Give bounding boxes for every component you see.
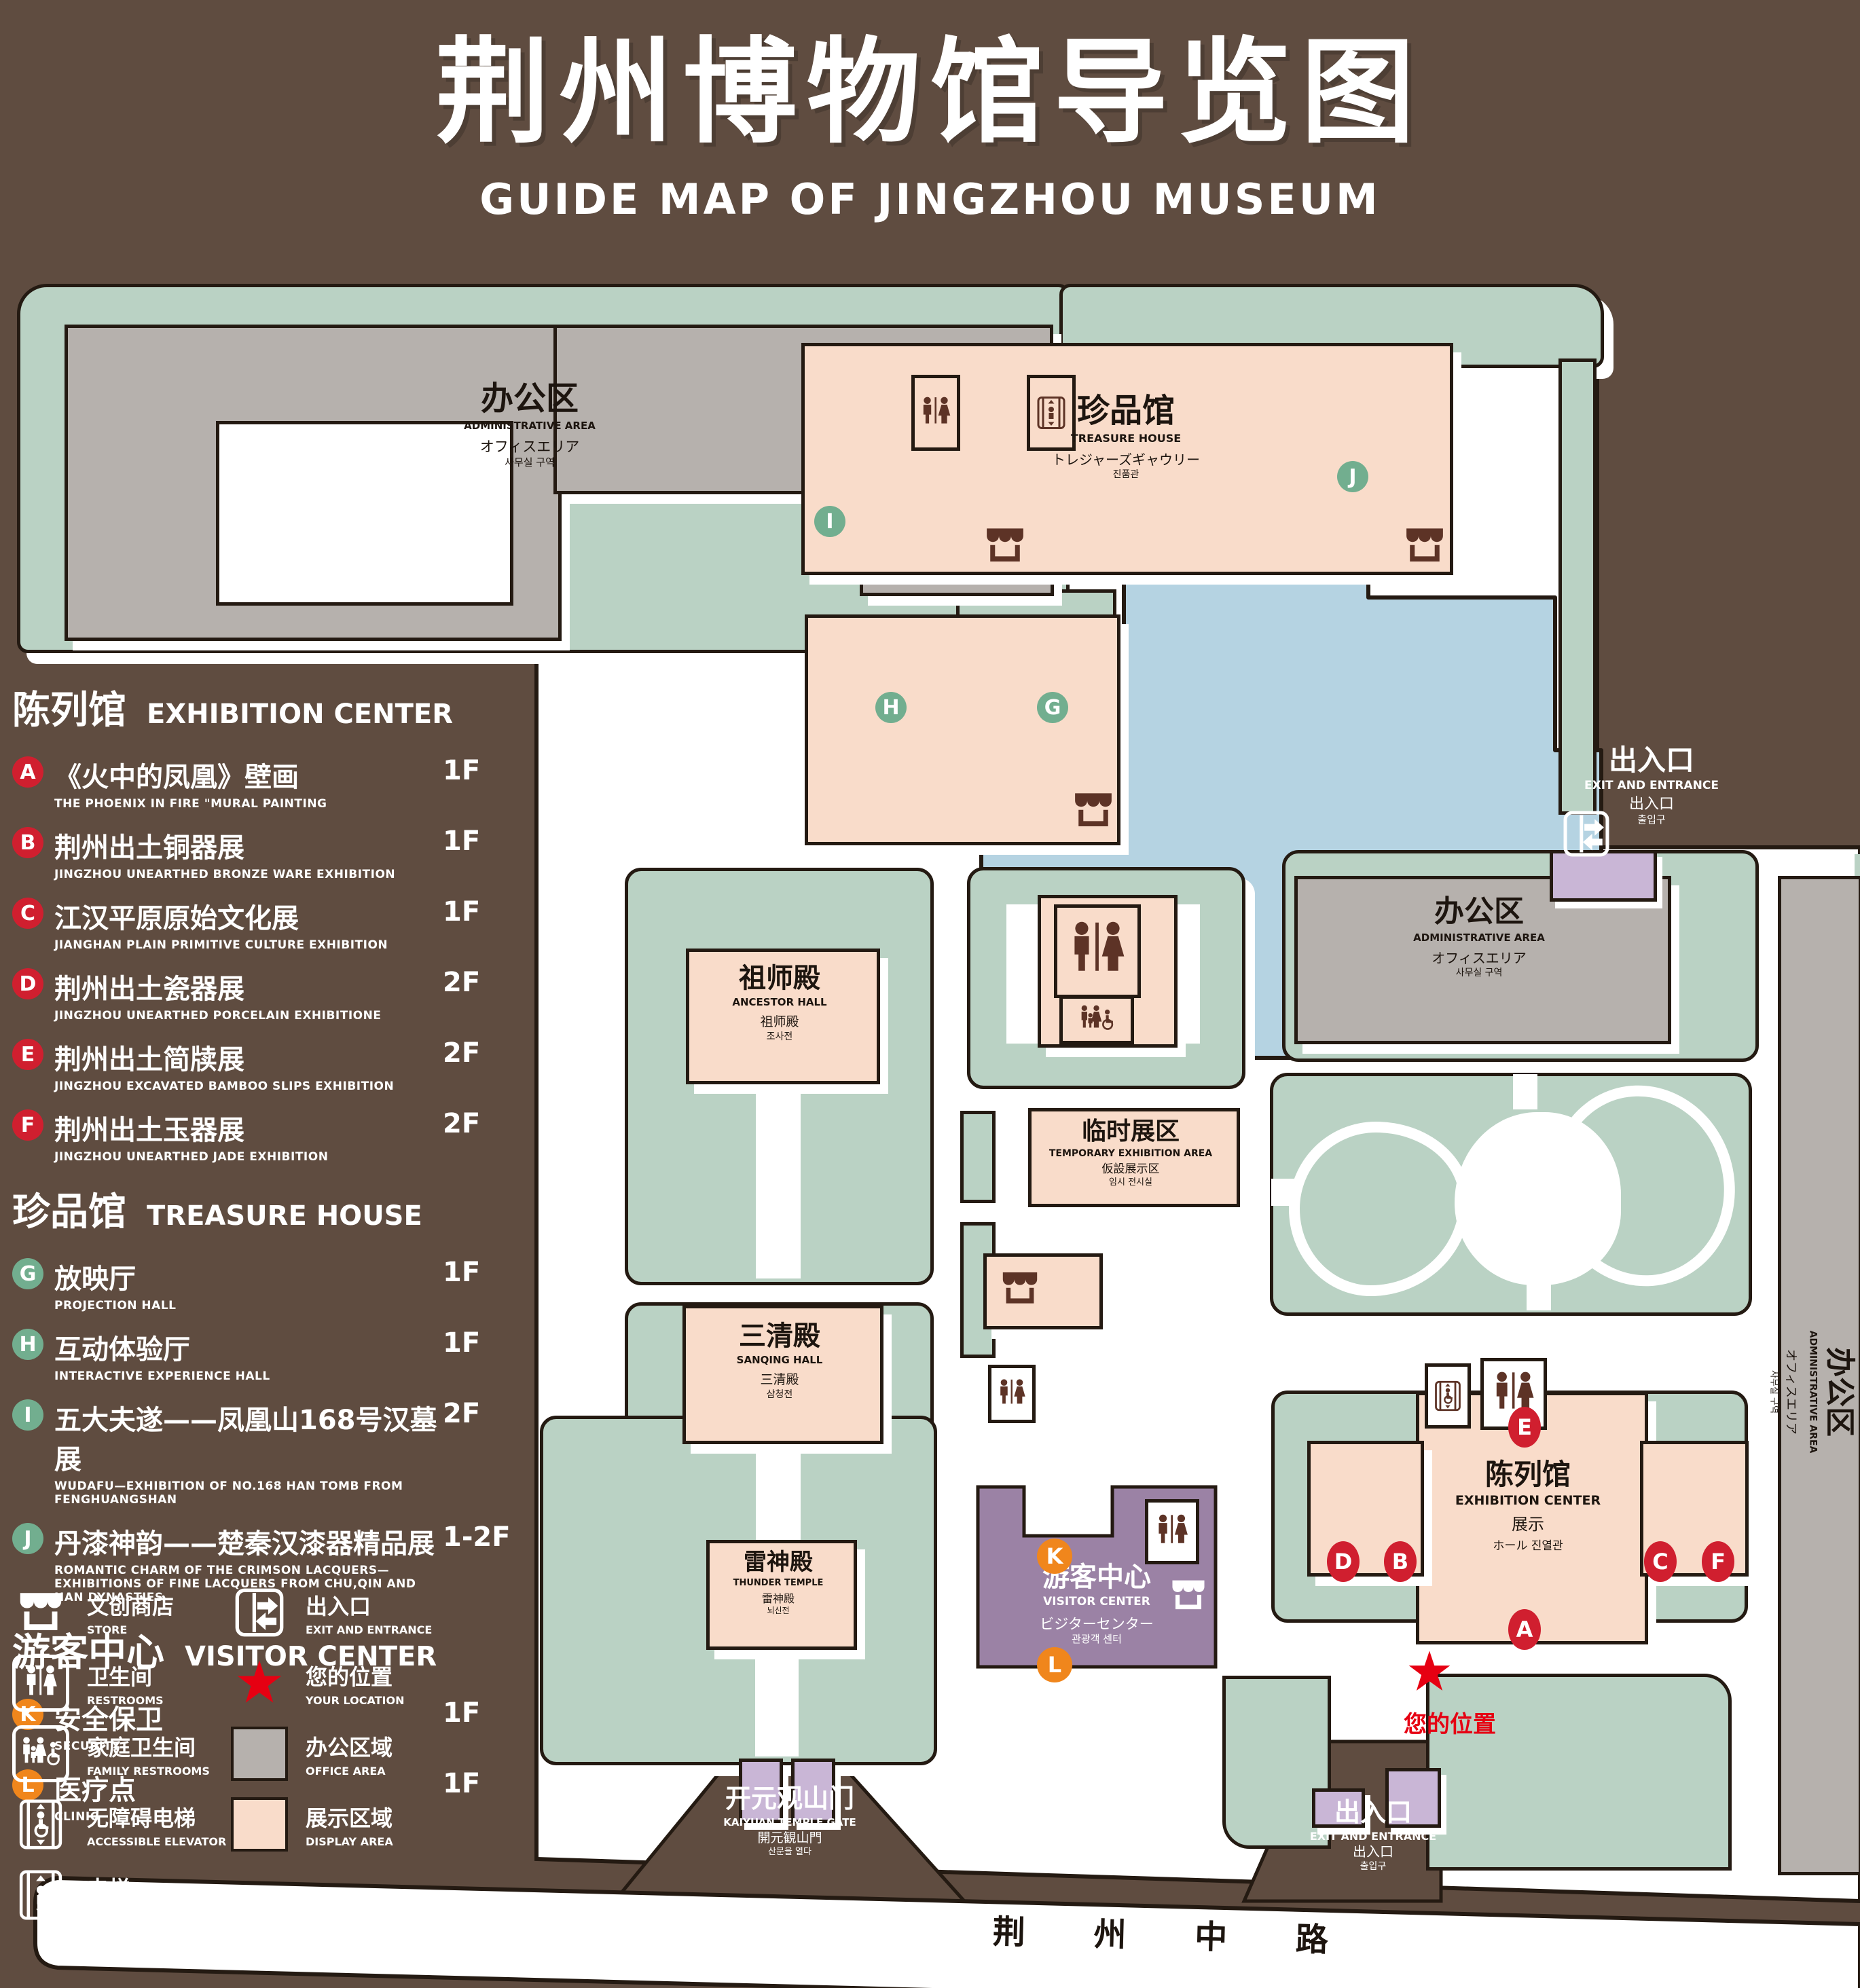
path-thunder [755, 1646, 799, 1756]
legend-item-name-en: PROJECTION HALL [54, 1299, 435, 1312]
location-star-icon [231, 1655, 288, 1712]
legend-item-name-en: WUDAFU—EXHIBITION OF NO.168 HAN TOMB FRO… [54, 1479, 435, 1507]
restrooms-icon [1145, 1499, 1199, 1564]
legend-badge: B [12, 827, 43, 858]
legend-item-name: 荆州出土铜器展 [54, 826, 440, 865]
legend-item-floor: 1F [443, 1327, 523, 1359]
office-area-swatch [231, 1725, 288, 1782]
legend-section-header-exhibition: 陈列馆 EXHIBITION CENTER [12, 680, 523, 735]
legend-item-floor: 2F [443, 1037, 523, 1069]
garden-path-north [1513, 1074, 1537, 1109]
admin-nw-label: 办公区 ADMINISTRATIVE AREA オフィスエリア 사무실 구역 [407, 380, 652, 468]
legend-item-name: 荆州出土简牍展 [54, 1037, 440, 1077]
legend-symbols-right: 出入口EXIT AND ENTRANCE 您的位置YOUR LOCATION 办… [231, 1583, 516, 1866]
exhibition-center-label: 陈列馆 EXHIBITION CENTER 展示 ホール 진열관 [1426, 1458, 1630, 1553]
path-ancestor [756, 1076, 801, 1278]
legend-item-name-en: INTERACTIVE EXPERIENCE HALL [54, 1369, 435, 1383]
legend-symbol-restrooms[interactable]: 卫生间RESTROOMS [12, 1654, 236, 1712]
legend-item-floor: 1F [443, 755, 523, 786]
legend-item-I[interactable]: I 五大夫遂——凤凰山168号汉墓展 2F WUDAFU—EXHIBITION … [12, 1398, 523, 1507]
map-marker-E[interactable]: E [1508, 1407, 1541, 1448]
legend-symbol-family-restrooms[interactable]: 家庭卫生间FAMILY RESTROOMS [12, 1725, 236, 1783]
legend-item-name: 《火中的凤凰》壁画 [54, 755, 440, 794]
legend-badge: E [12, 1039, 43, 1070]
legend-item-G[interactable]: G 放映厅 1F PROJECTION HALL [12, 1257, 523, 1312]
map-marker-L[interactable]: L [1037, 1647, 1072, 1682]
restrooms-icon [12, 1655, 69, 1712]
admin-east-label: 办公区 ADMINISTRATIVE AREA オフィスエリア 사무실 구역 [1778, 876, 1855, 1869]
legend-symbol-elevator[interactable]: 电梯Elevator [12, 1866, 236, 1924]
legend-item-floor: 1F [443, 1257, 523, 1288]
treasure-house-label: 珍品馆 TREASURE HOUSE トレジャーズギャウリー 진품관 [983, 392, 1269, 480]
legend-section-header-treasure: 珍品馆 TREASURE HOUSE [12, 1181, 523, 1236]
legend-item-name-en: JINGZHOU UNEARTHED PORCELAIN EXHIBITIONE [54, 1009, 435, 1023]
elevator-icon [12, 1866, 69, 1923]
exit-icon [231, 1584, 288, 1641]
temporary-exhibition-label: 临时展区 TEMPORARY EXHIBITION AREA 仮設展示区 임시 … [1029, 1118, 1233, 1188]
store-icon [12, 1584, 69, 1641]
legend-badge: F [12, 1109, 43, 1141]
legend-item-name-en: THE PHOENIX IN FIRE "MURAL PAINTING [54, 797, 435, 811]
gate-label: 开元观山门 KAIYUAN TEMPLE GATE 開元観山門 산문을 열다 [678, 1784, 902, 1858]
map-marker-H[interactable]: H [875, 692, 907, 723]
legend-item-name-en: JINGZHOU UNEARTHED BRONZE WARE EXHIBITIO… [54, 868, 435, 881]
thunder-temple-label: 雷神殿 THUNDER TEMPLE 雷神殿 뇌신전 [707, 1549, 850, 1616]
legend-item-F[interactable]: F 荆州出土玉器展 2F JINGZHOU UNEARTHED JADE EXH… [12, 1108, 523, 1164]
restrooms-icon [911, 375, 960, 451]
your-location-star [1407, 1650, 1452, 1695]
display-area-swatch [231, 1796, 288, 1853]
page-title: 荆州博物馆导览图 [0, 0, 1860, 165]
legend-item-floor: 2F [443, 1108, 523, 1139]
page-header: 荆州博物馆导览图 GUIDE MAP OF JINGZHOU MUSEUM [0, 0, 1860, 224]
legend-item-name: 互动体验厅 [54, 1327, 440, 1367]
store-icon [1403, 524, 1446, 568]
legend-symbol-office-area[interactable]: 办公区域OFFICE AREA [231, 1725, 516, 1783]
green-strip-temp-1 [960, 1111, 996, 1203]
map-marker-C[interactable]: C [1644, 1541, 1677, 1582]
map-marker-I[interactable]: I [814, 506, 845, 537]
admin-center-label: 办公区 ADMINISTRATIVE AREA オフィスエリア 사무실 구역 [1350, 895, 1608, 978]
legend-symbols-left: 文创商店STORE 卫生间RESTROOMS 家庭卫生间FAMILY RESTR… [12, 1583, 236, 1936]
ancestor-hall-label: 祖师殿 ANCESTOR HALL 祖师殿 조사전 [691, 963, 868, 1042]
map-marker-A[interactable]: A [1508, 1609, 1541, 1650]
road-name: 荆 州 中 路 [992, 1904, 1357, 1961]
section-title-zh: 珍品馆 [12, 1181, 126, 1236]
family-restrooms-icon [12, 1725, 69, 1782]
legend-item-name: 五大夫遂——凤凰山168号汉墓展 [54, 1398, 440, 1477]
your-location-text: 您的位置 [1404, 1706, 1496, 1739]
garden-path-south [1527, 1281, 1551, 1310]
accessible-elevator-icon [12, 1796, 69, 1853]
accessible-elevator-icon [1425, 1363, 1471, 1429]
legend-badge: J [12, 1523, 43, 1554]
section-title-en: TREASURE HOUSE [147, 1200, 422, 1232]
legend-item-D[interactable]: D 荆州出土瓷器展 2F JINGZHOU UNEARTHED PORCELAI… [12, 967, 523, 1023]
family-restrooms-icon [1059, 995, 1134, 1044]
legend-item-B[interactable]: B 荆州出土铜器展 1F JINGZHOU UNEARTHED BRONZE W… [12, 826, 523, 881]
map-marker-G[interactable]: G [1037, 692, 1068, 723]
restrooms-icon [988, 1365, 1036, 1423]
store-icon [1000, 1268, 1040, 1309]
section-title-en: EXHIBITION CENTER [147, 699, 453, 730]
map-marker-B[interactable]: B [1384, 1541, 1417, 1582]
section-title-zh: 陈列馆 [12, 680, 126, 735]
legend-badge: H [12, 1329, 43, 1360]
sanqing-hall-label: 三清殿 SANQING HALL 三清殿 삼청전 [691, 1321, 868, 1400]
legend-item-name: 荆州出土瓷器展 [54, 967, 440, 1006]
legend-item-name-en: JINGZHOU EXCAVATED BAMBOO SLIPS EXHIBITI… [54, 1080, 435, 1093]
legend-item-floor: 2F [443, 1398, 523, 1429]
map-marker-K[interactable]: K [1037, 1539, 1072, 1574]
legend-item-A[interactable]: A 《火中的凤凰》壁画 1F THE PHOENIX IN FIRE "MURA… [12, 755, 523, 811]
legend-item-floor: 2F [443, 967, 523, 998]
legend-item-floor: 1F [443, 826, 523, 857]
store-icon [1072, 789, 1115, 832]
legend-badge: I [12, 1399, 43, 1431]
legend-symbol-store[interactable]: 文创商店STORE [12, 1583, 236, 1642]
store-icon [983, 524, 1027, 568]
restrooms-icon [1054, 904, 1141, 998]
garden-path-west [1271, 1179, 1294, 1206]
legend-item-floor: 1-2F [443, 1522, 523, 1553]
legend-item-H[interactable]: H 互动体验厅 1F INTERACTIVE EXPERIENCE HALL [12, 1327, 523, 1383]
legend-symbol-exit[interactable]: 出入口EXIT AND ENTRANCE [231, 1583, 516, 1642]
legend-item-name: 荆州出土玉器展 [54, 1108, 440, 1147]
map-marker-J[interactable]: J [1337, 461, 1368, 492]
legend-symbol-accessible-elevator[interactable]: 无障碍电梯ACCESSIBLE ELEVATOR [12, 1795, 236, 1854]
legend-item-name-en: JINGZHOU UNEARTHED JADE EXHIBITION [54, 1150, 435, 1164]
legend-symbol-display-area[interactable]: 展示区域DISPLAY AREA [231, 1795, 516, 1854]
ne-exit-label: 出入口 EXIT AND ENTRANCE 出入口 출입구 [1543, 744, 1760, 826]
legend-badge: A [12, 756, 43, 788]
legend-badge: G [12, 1258, 43, 1289]
legend-item-E[interactable]: E 荆州出土简牍展 2F JINGZHOU EXCAVATED BAMBOO S… [12, 1037, 523, 1093]
map-marker-F[interactable]: F [1702, 1541, 1734, 1582]
legend-item-name: 江汉平原原始文化展 [54, 896, 440, 936]
legend-item-floor: 1F [443, 896, 523, 927]
legend-badge: D [12, 968, 43, 999]
legend-badge: C [12, 898, 43, 929]
visitor-center-label: 游客中心 VISITOR CENTER ビジターセンター 관광객 센터 [995, 1562, 1199, 1645]
south-exit-label: 出入口 EXIT AND ENTRANCE 出入口 출입구 [1271, 1798, 1475, 1872]
legend-item-name-en: JIANGHAN PLAIN PRIMITIVE CULTURE EXHIBIT… [54, 938, 435, 952]
legend-symbol-location[interactable]: 您的位置YOUR LOCATION [231, 1654, 516, 1712]
page-subtitle: GUIDE MAP OF JINGZHOU MUSEUM [0, 174, 1860, 224]
map-marker-D[interactable]: D [1327, 1541, 1360, 1582]
museum-guide-map: 办公区 ADMINISTRATIVE AREA オフィスエリア 사무실 구역 珍… [0, 0, 1860, 1988]
legend-item-name: 丹漆神韵——楚秦汉漆器精品展 [54, 1522, 440, 1561]
legend-item-name: 放映厅 [54, 1257, 440, 1296]
legend-item-C[interactable]: C 江汉平原原始文化展 1F JIANGHAN PLAIN PRIMITIVE … [12, 896, 523, 952]
